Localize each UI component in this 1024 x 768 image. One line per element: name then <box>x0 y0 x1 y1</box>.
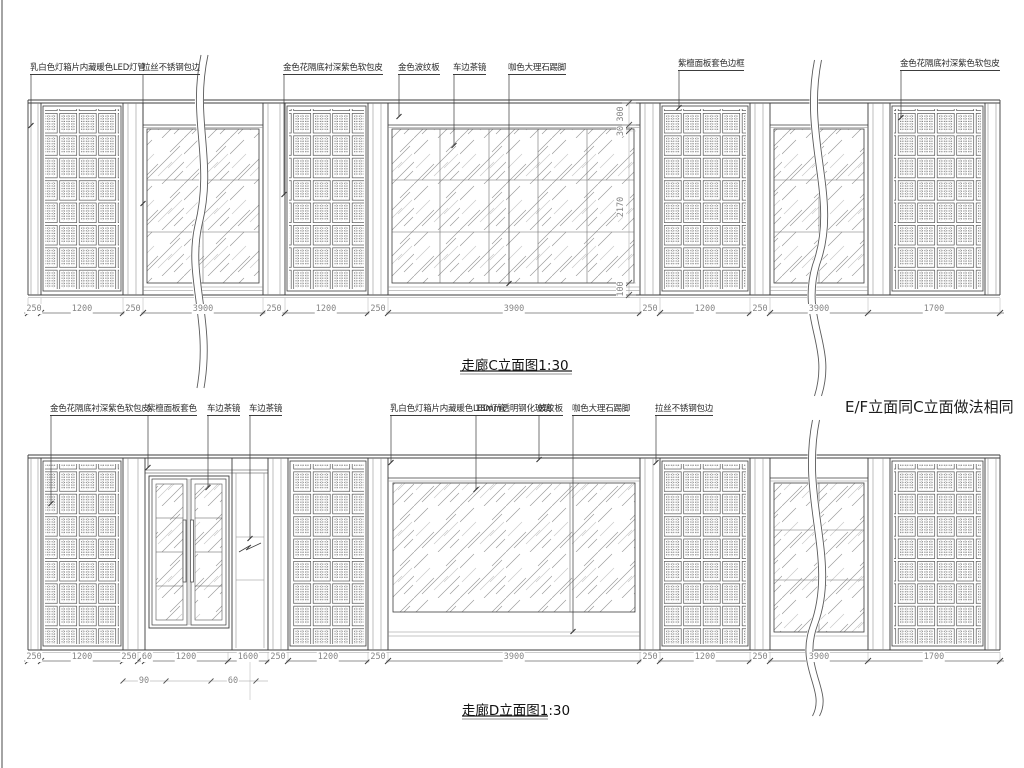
dimension-label-vertical: 300 <box>616 106 626 121</box>
dimension-label: 3900 <box>808 652 830 662</box>
dimension-label: 1700 <box>923 652 945 662</box>
sub-dimension-label: 90 <box>138 676 150 686</box>
dimension-label: 60 <box>141 652 153 662</box>
dimension-label: 250 <box>751 304 768 314</box>
callout-label: 乳白色灯箱片内藏暖色LED灯管 <box>30 62 146 75</box>
dimension-label: 250 <box>751 652 768 662</box>
callout-label: 拉丝不锈钢包边 <box>142 62 200 75</box>
elevation-c-wall <box>28 100 1000 298</box>
dimension-label: 250 <box>265 304 282 314</box>
dimension-label: 1600 <box>237 652 259 662</box>
callout-label: 紫檀面板套色 <box>147 403 197 416</box>
dimension-label: 1700 <box>923 304 945 314</box>
dimension-label: 1200 <box>71 652 93 662</box>
note-ef-elevation: E/F立面同C立面做法相同 <box>845 396 1014 417</box>
elevation-d-wall <box>28 455 1000 653</box>
callout-label: 车边茶镜 <box>453 62 486 75</box>
dimension-label: 250 <box>120 652 137 662</box>
dimension-label: 1200 <box>71 304 93 314</box>
double-door <box>145 470 268 628</box>
dimension-label: 250 <box>25 304 42 314</box>
dimension-label: 250 <box>369 652 386 662</box>
callout-label: 车边茶镜 <box>249 403 282 416</box>
dimension-label: 250 <box>641 652 658 662</box>
dimension-label: 1200 <box>175 652 197 662</box>
dimension-label-vertical: 2170 <box>616 197 626 217</box>
sub-dimension-label: 60 <box>227 676 239 686</box>
dimension-label: 1200 <box>317 652 339 662</box>
callout-label: 金色花隔底衬深紫色软包皮 <box>283 62 383 75</box>
dimension-label: 1200 <box>694 652 716 662</box>
dimension-label-vertical: 30 <box>616 126 626 136</box>
dimension-label: 250 <box>269 652 286 662</box>
dimension-label-vertical: 100 <box>616 281 626 296</box>
dimension-label: 1200 <box>694 304 716 314</box>
drawing-sheet: 乳白色灯箱片内藏暖色LED灯管 拉丝不锈钢包边 金色花隔底衬深紫色软包皮 金色波… <box>0 0 1024 768</box>
callout-label: 咖色大理石踢脚 <box>508 62 566 75</box>
dimension-label: 3900 <box>503 304 525 314</box>
dimension-label: 3900 <box>503 652 525 662</box>
callout-label: 咖色大理石踢脚 <box>572 403 630 416</box>
drawing-title-c: 走廊C立面图1:30 <box>461 354 568 374</box>
callout-label: 金色花隔底衬深紫色软包皮 <box>50 403 150 416</box>
dimension-label: 250 <box>641 304 658 314</box>
dimension-label: 3900 <box>808 304 830 314</box>
dimension-label: 250 <box>25 652 42 662</box>
dimension-label: 250 <box>369 304 386 314</box>
dimension-label: 1200 <box>315 304 337 314</box>
dimension-label: 3900 <box>192 304 214 314</box>
callout-label: 金色花隔底衬深紫色软包皮 <box>900 58 1000 71</box>
dimension-label: 250 <box>124 304 141 314</box>
callout-label: 紫檀面板套色边框 <box>678 58 744 71</box>
callout-label: 波纹板 <box>538 403 563 416</box>
drawing-title-d: 走廊D立面图1:30 <box>462 699 570 719</box>
callout-label: 拉丝不锈钢包边 <box>655 403 713 416</box>
callout-label: 金色波纹板 <box>398 62 440 75</box>
callout-label: 车边茶镜 <box>207 403 240 416</box>
